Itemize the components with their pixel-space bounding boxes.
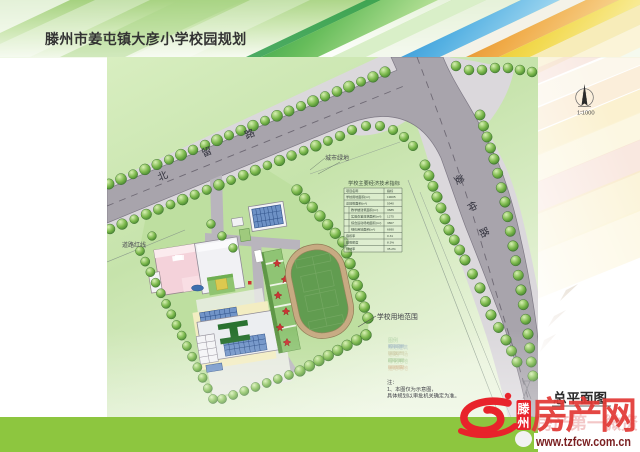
svg-text:学校用地面积(m²): 学校用地面积(m²) (346, 194, 370, 199)
svg-text:0.31: 0.31 (387, 234, 393, 238)
svg-text:5940: 5940 (387, 202, 394, 206)
svg-text:滕州市姜屯镇大彦小学校园规划: 滕州市姜屯镇大彦小学校园规划 (45, 31, 247, 47)
svg-text:教学楼建筑面积(m²): 教学楼建筑面积(m²) (351, 207, 378, 212)
svg-text:8.3%: 8.3% (387, 241, 394, 245)
svg-text:注：: 注： (387, 378, 397, 386)
svg-text:学校用地范围: 学校用地范围 (377, 312, 418, 321)
svg-text:实验食堂建筑面积(m²): 实验食堂建筑面积(m²) (351, 214, 381, 219)
svg-text:城市绿地: 城市绿地 (325, 154, 349, 162)
svg-text:www.tzfcw.com.cn: www.tzfcw.com.cn (535, 435, 631, 449)
svg-text:图例: 图例 (388, 337, 398, 344)
svg-text:1∶1000: 1∶1000 (577, 111, 595, 117)
svg-text:3807: 3807 (387, 221, 394, 225)
svg-text:1、本图仅为示意图，: 1、本图仅为示意图， (387, 385, 437, 393)
svg-text:综合运动场地面积(m²): 综合运动场地面积(m²) (351, 220, 381, 225)
svg-text:容积率: 容积率 (346, 233, 355, 238)
svg-text:1275: 1275 (387, 215, 394, 219)
svg-text:道路红线: 道路红线 (122, 241, 146, 249)
svg-text:3685: 3685 (387, 208, 394, 212)
svg-text:学校主要经济技术指标: 学校主要经济技术指标 (348, 179, 400, 187)
svg-text:绿地率: 绿地率 (346, 246, 355, 251)
svg-text:建筑密度: 建筑密度 (346, 240, 358, 245)
svg-text:州: 州 (517, 416, 530, 430)
svg-text:指标: 指标 (387, 188, 393, 193)
svg-text:绿化用地面积(m²): 绿化用地面积(m²) (351, 227, 375, 232)
svg-text:项目名称: 项目名称 (346, 188, 358, 193)
svg-text:35.2%: 35.2% (387, 247, 396, 251)
svg-text:房产网: 房产网 (531, 395, 635, 436)
svg-text:6690: 6690 (387, 228, 394, 232)
svg-text:滕: 滕 (518, 401, 531, 416)
svg-text:总建筑面积(m²): 总建筑面积(m²) (346, 201, 367, 206)
svg-text:19005: 19005 (387, 195, 396, 199)
svg-text:具体规划以审批机关确定为准。: 具体规划以审批机关确定为准。 (387, 392, 460, 400)
